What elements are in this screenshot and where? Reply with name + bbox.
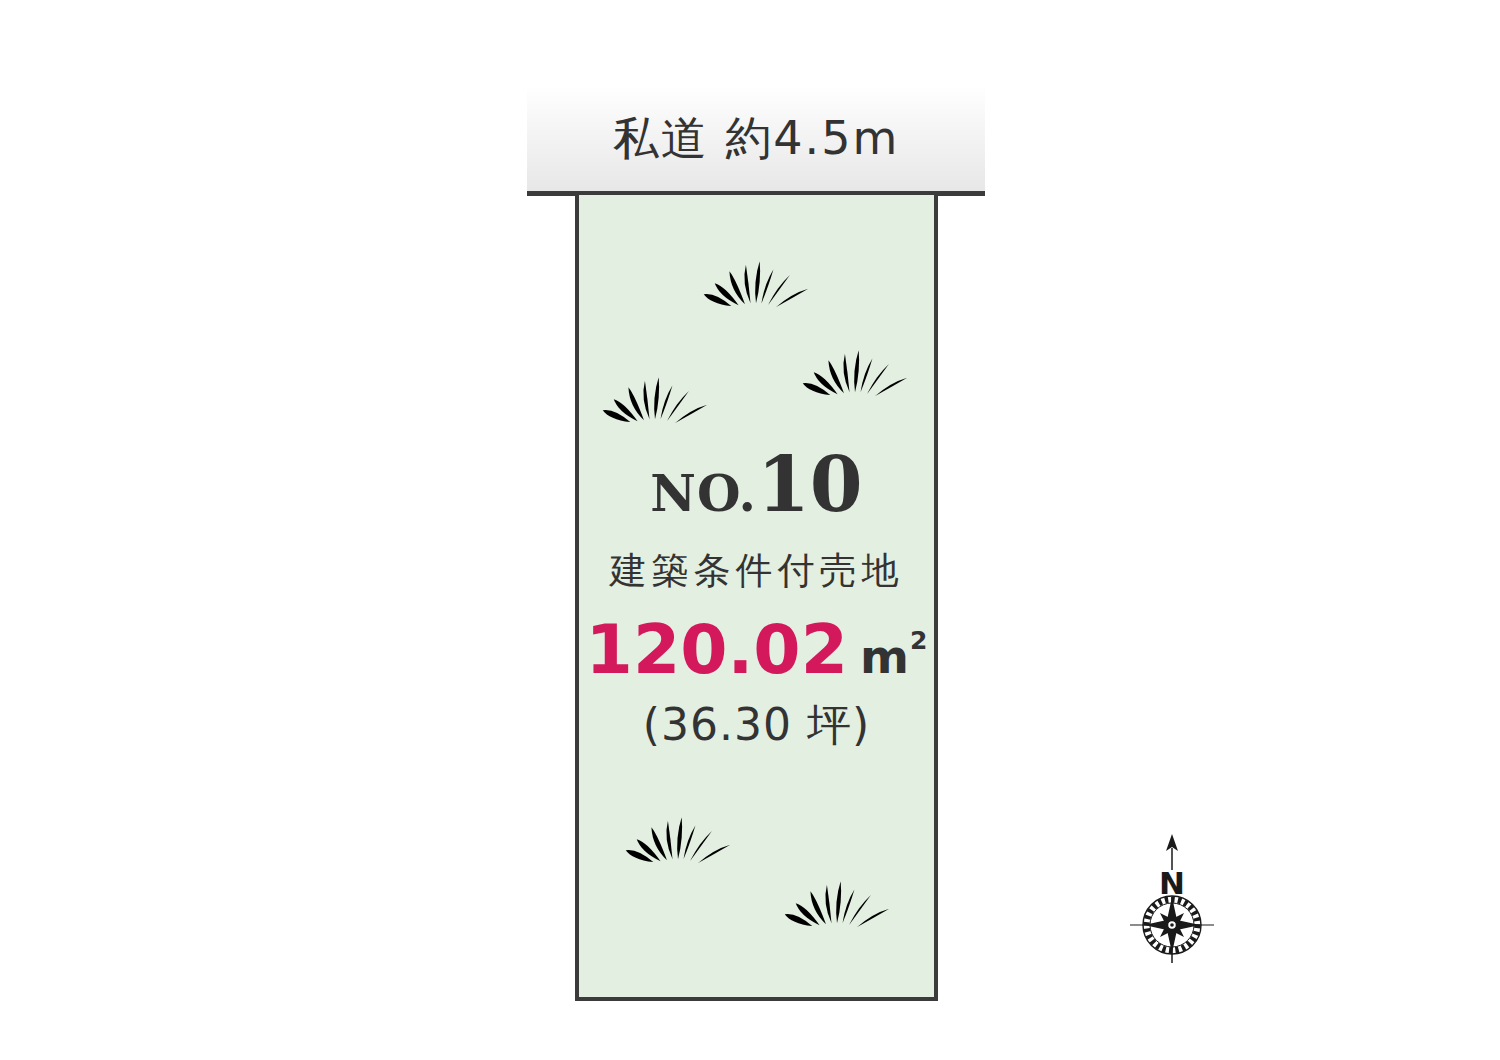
plot-area: 120.02 m2 <box>575 610 938 689</box>
plot-area-tsubo: (36.30 坪) <box>575 696 938 755</box>
site-plan: 私道 約4.5m NO.10 建築条件付売地 120.02 m2 (36.30 … <box>0 0 1500 1060</box>
area-value: 120.02 <box>586 610 848 689</box>
area-unit-base: m <box>860 629 909 684</box>
road-band: 私道 約4.5m <box>527 85 985 196</box>
compass-hub-dot <box>1170 923 1174 927</box>
area-unit-exponent: 2 <box>910 626 927 655</box>
grass-icon <box>800 350 910 398</box>
grass-icon <box>623 817 733 865</box>
plot-number-prefix: NO. <box>650 464 757 523</box>
road-label: 私道 約4.5m <box>613 106 900 170</box>
plot-number-value: 10 <box>757 440 863 529</box>
grass-icon <box>600 377 710 425</box>
area-unit: m2 <box>860 626 927 684</box>
grass-icon <box>701 261 811 309</box>
plot-outline <box>575 191 938 1001</box>
plot-category: 建築条件付売地 <box>575 546 938 596</box>
compass-rose-icon: N <box>1124 830 1220 970</box>
plot-number: NO.10 <box>575 440 938 529</box>
grass-icon <box>782 881 892 929</box>
